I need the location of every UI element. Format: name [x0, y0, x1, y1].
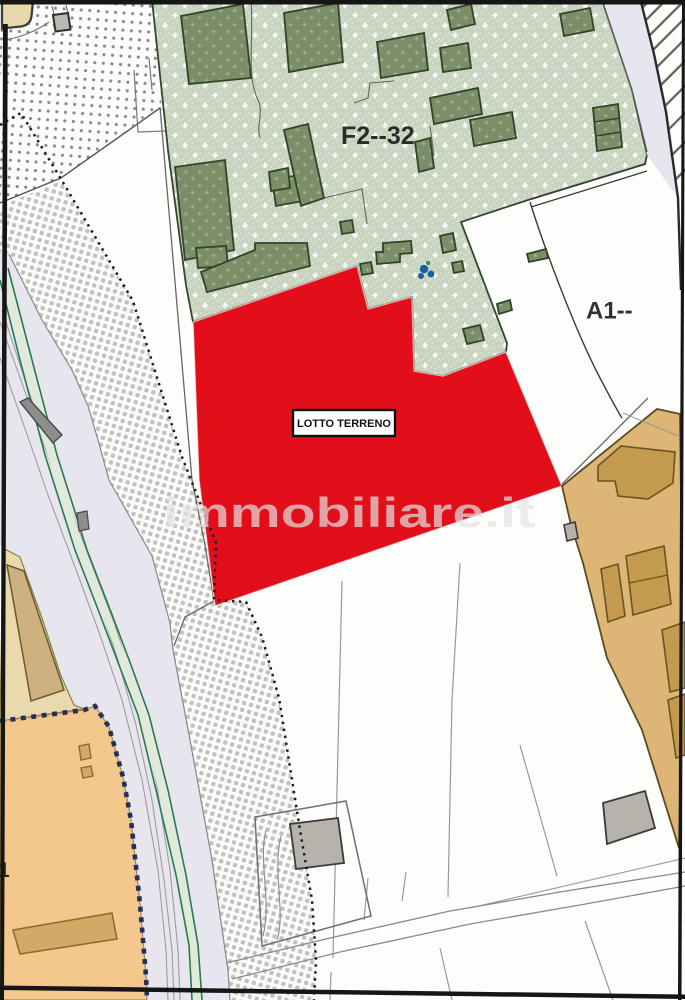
svg-text:LOTTO TERRENO: LOTTO TERRENO — [297, 418, 391, 430]
svg-text:F2--32: F2--32 — [341, 122, 415, 150]
svg-text:A1--: A1-- — [586, 298, 633, 325]
svg-text:immobiliare.it: immobiliare.it — [163, 489, 535, 536]
